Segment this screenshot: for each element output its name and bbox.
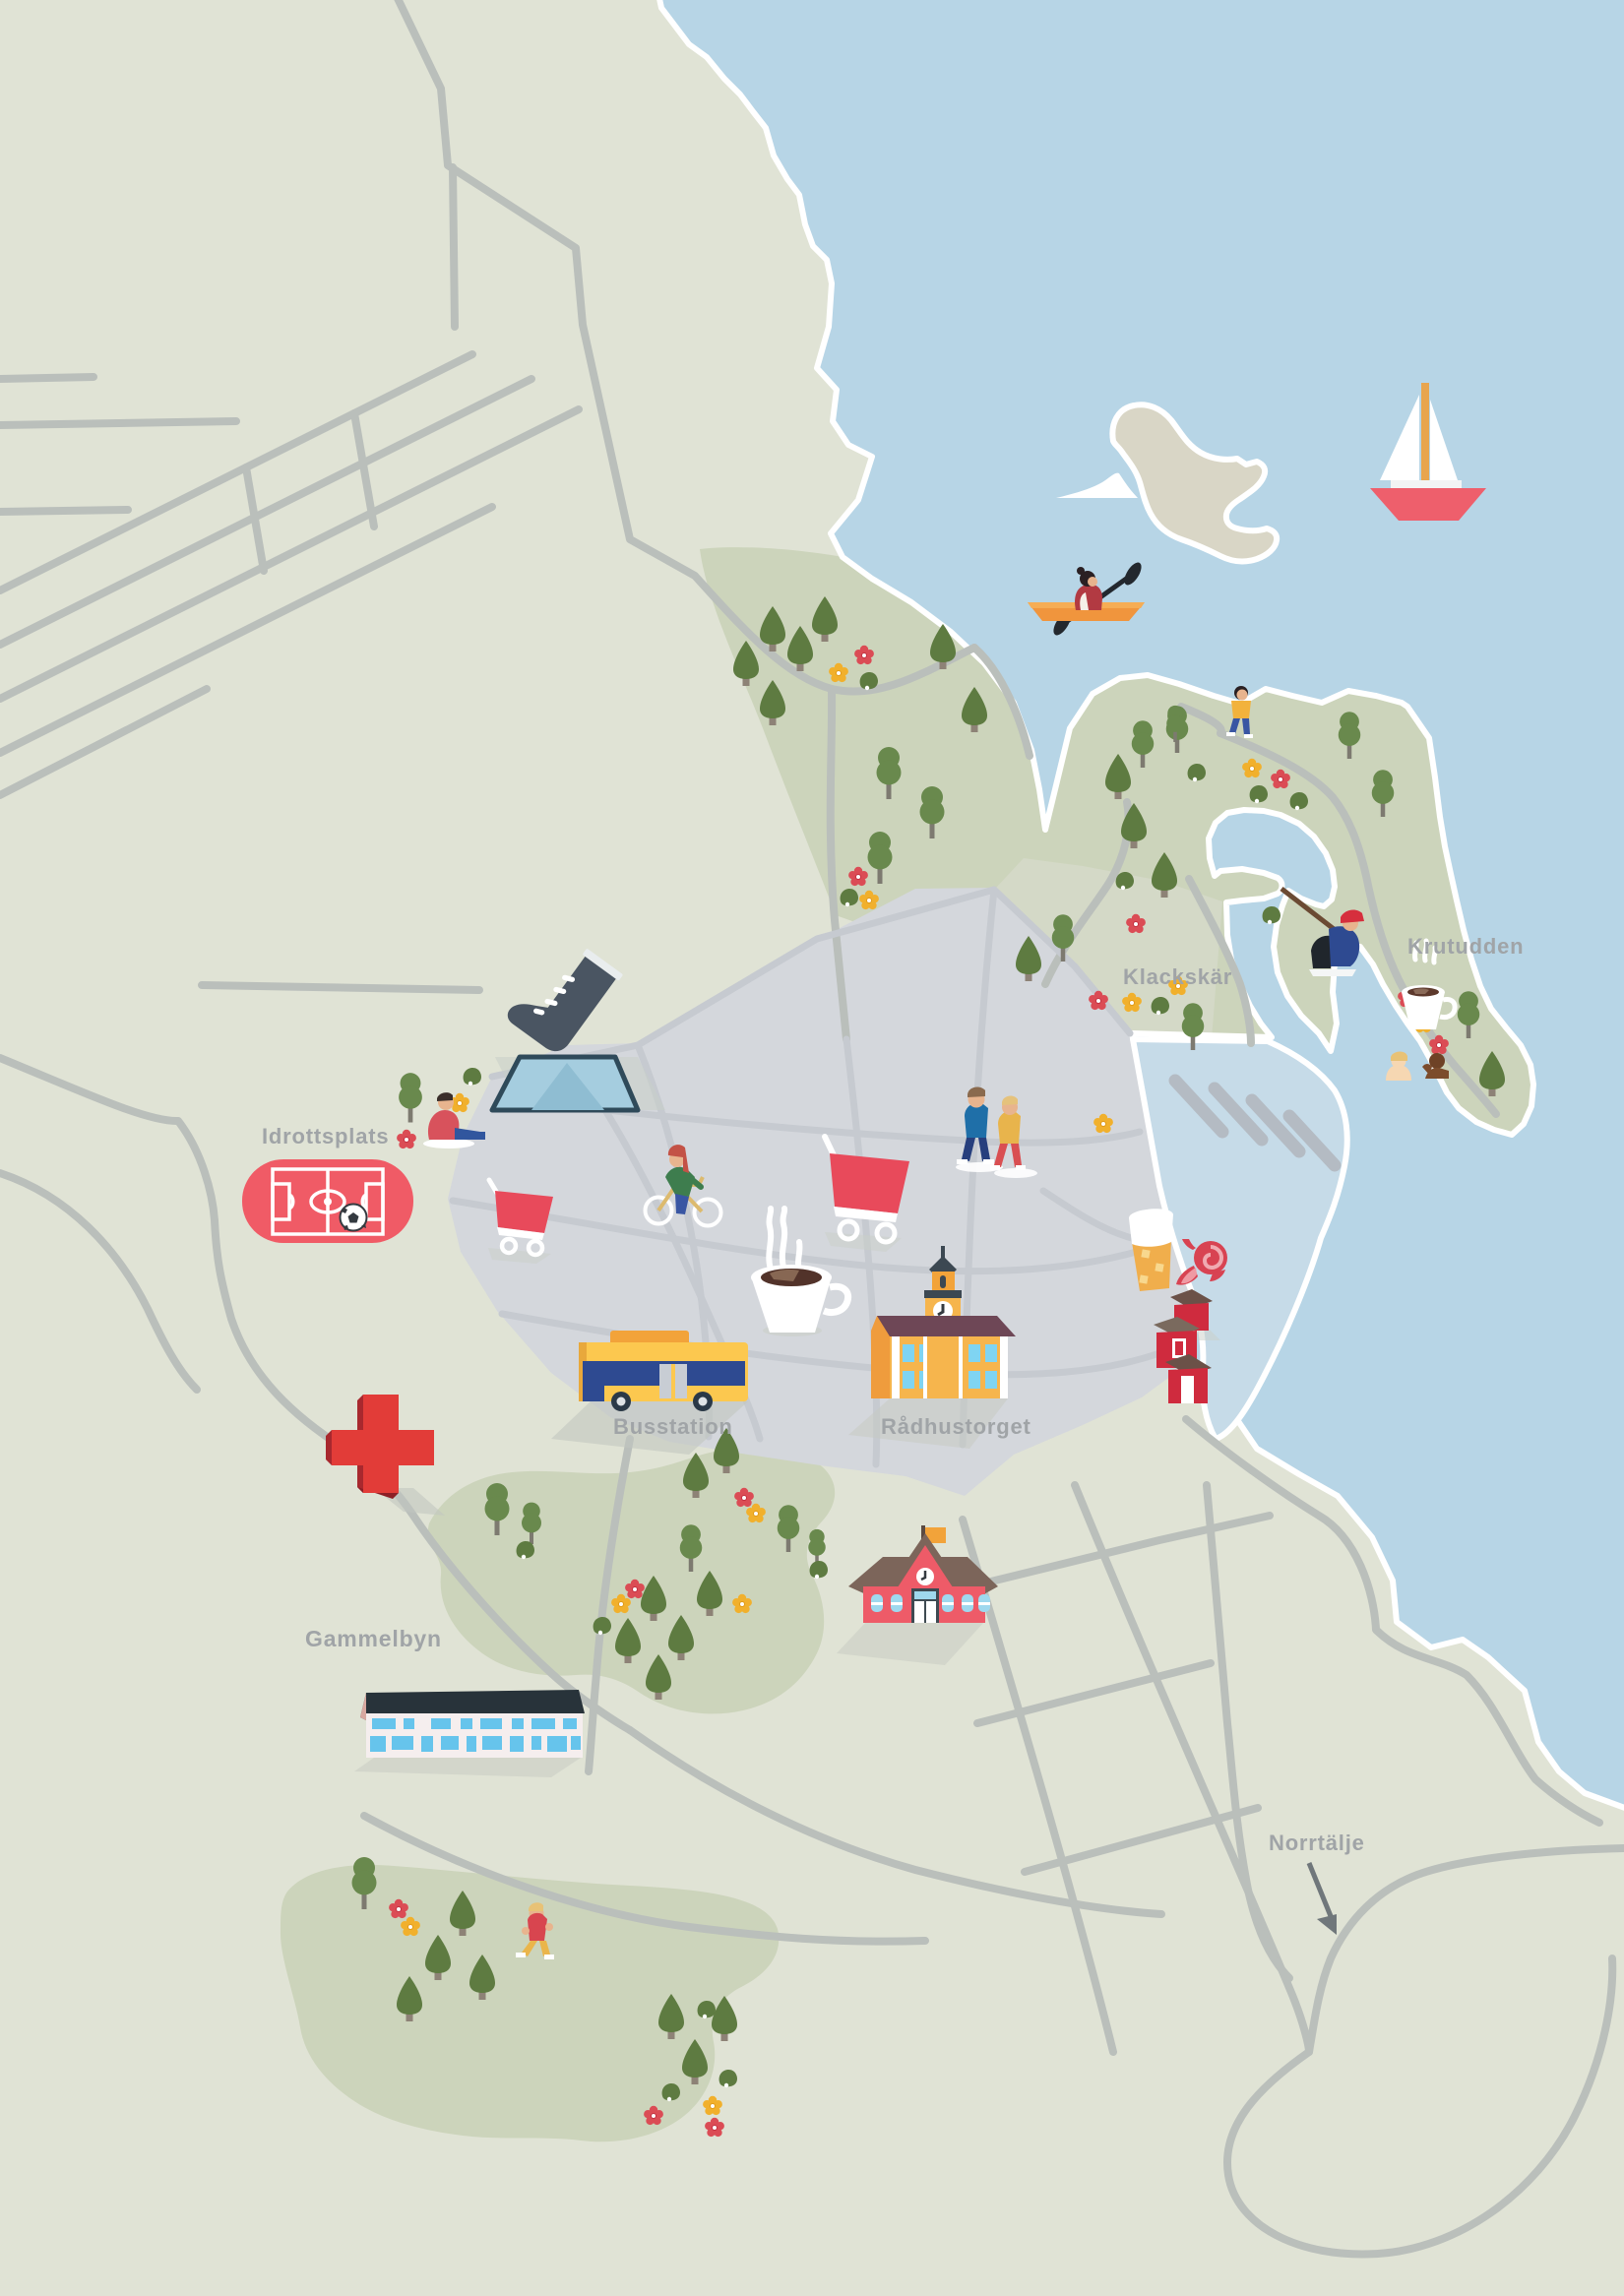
svg-text:Gammelbyn: Gammelbyn <box>305 1626 442 1651</box>
svg-text:Klackskär: Klackskär <box>1123 964 1232 989</box>
svg-text:Busstation: Busstation <box>613 1414 733 1439</box>
svg-text:Norrtälje: Norrtälje <box>1269 1831 1365 1855</box>
svg-text:Rådhustorget: Rådhustorget <box>881 1414 1031 1439</box>
svg-text:Idrottsplats: Idrottsplats <box>262 1124 389 1148</box>
svg-text:Krutudden: Krutudden <box>1407 934 1524 959</box>
